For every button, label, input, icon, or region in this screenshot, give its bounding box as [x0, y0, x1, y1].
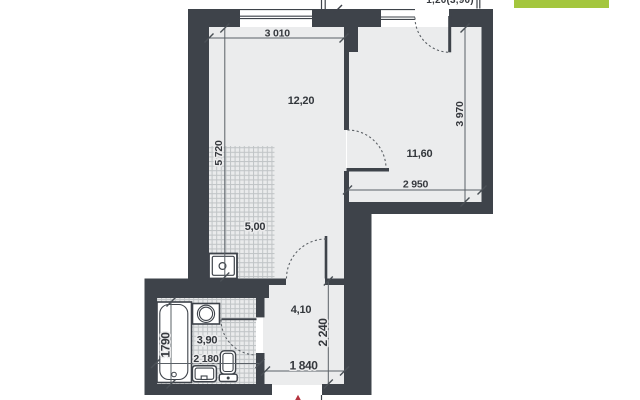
svg-text:2 180: 2 180 [193, 353, 219, 365]
svg-text:5,00: 5,00 [245, 221, 266, 233]
svg-text:4,10: 4,10 [291, 304, 312, 316]
svg-text:1,20(3,90): 1,20(3,90) [426, 0, 474, 6]
svg-text:12,20: 12,20 [288, 95, 315, 107]
svg-text:1 840: 1 840 [289, 359, 318, 373]
svg-text:2 950: 2 950 [403, 179, 429, 191]
svg-text:3,90: 3,90 [197, 335, 218, 347]
svg-text:2 240: 2 240 [316, 318, 330, 347]
svg-text:3 010: 3 010 [265, 28, 291, 40]
svg-text:5 720: 5 720 [213, 140, 225, 166]
svg-text:1790: 1790 [159, 332, 173, 358]
svg-text:11,60: 11,60 [407, 148, 433, 160]
svg-text:3 970: 3 970 [454, 101, 466, 127]
